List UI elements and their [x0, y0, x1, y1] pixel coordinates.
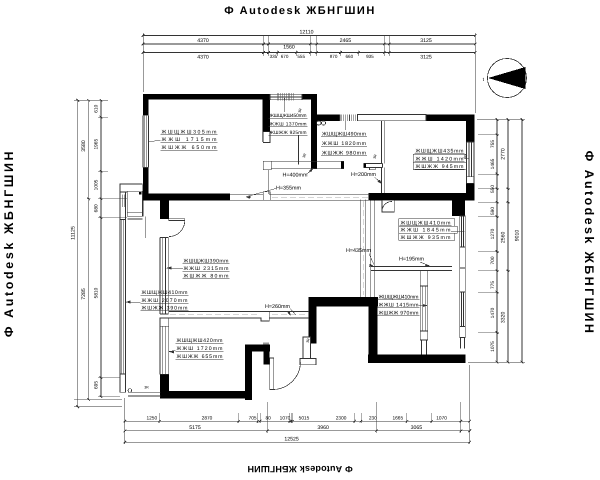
svg-text:4370: 4370	[197, 55, 209, 61]
svg-text:7285: 7285	[81, 288, 87, 300]
svg-text:1965: 1965	[93, 139, 99, 150]
svg-text:2300: 2300	[336, 415, 347, 421]
svg-text:755: 755	[490, 140, 496, 148]
svg-text:5015: 5015	[299, 415, 310, 421]
svg-text:670: 670	[281, 54, 289, 59]
svg-text:1005: 1005	[93, 179, 99, 190]
svg-text:H=435mm: H=435mm	[346, 248, 372, 254]
svg-text:555: 555	[297, 54, 305, 59]
svg-text:3125: 3125	[420, 38, 432, 44]
svg-text:1465: 1465	[490, 158, 496, 169]
svg-text:12525: 12525	[284, 436, 299, 442]
svg-text:Ф Autodesk ЖБНГШИН: Ф Autodesk ЖБНГШИН	[224, 5, 376, 17]
svg-text:3R: 3R	[144, 386, 149, 390]
svg-text:2560: 2560	[501, 232, 507, 244]
svg-text:2770: 2770	[501, 148, 507, 160]
svg-text:2870: 2870	[202, 415, 213, 421]
svg-text:Ф Autodesk ЖБНГШИН: Ф Autodesk ЖБНГШИН	[2, 149, 16, 337]
svg-text:705: 705	[249, 415, 257, 421]
svg-text:1075: 1075	[490, 341, 496, 352]
svg-text:1560: 1560	[283, 44, 295, 50]
svg-text:H=400mm: H=400mm	[282, 172, 308, 178]
svg-text:695: 695	[93, 381, 99, 389]
svg-text:H=200mm: H=200mm	[351, 172, 377, 178]
svg-text:Ф Autodesk ЖБНГШИН: Ф Autodesk ЖБНГШИН	[247, 464, 353, 474]
svg-text:775: 775	[490, 281, 496, 289]
svg-text:1665: 1665	[392, 415, 403, 421]
svg-text:590: 590	[490, 207, 496, 215]
svg-text:3580: 3580	[81, 140, 87, 152]
svg-text:870: 870	[330, 54, 338, 59]
svg-text:700: 700	[490, 256, 496, 264]
svg-text:935: 935	[366, 54, 374, 59]
svg-text:H=355mm: H=355mm	[276, 185, 302, 191]
svg-text:9010: 9010	[515, 230, 521, 242]
svg-text:610: 610	[93, 104, 99, 112]
svg-text:1250: 1250	[146, 415, 157, 421]
svg-text:4370: 4370	[197, 38, 209, 44]
svg-text:5175: 5175	[189, 425, 201, 431]
svg-text:230: 230	[369, 415, 377, 421]
svg-text:2465: 2465	[340, 38, 352, 44]
svg-text:H=195mm: H=195mm	[399, 257, 425, 263]
svg-text:12110: 12110	[299, 30, 313, 36]
svg-text:3125: 3125	[420, 55, 432, 61]
svg-text:3960: 3960	[317, 425, 329, 431]
svg-text:3065: 3065	[411, 425, 423, 431]
svg-text:1270: 1270	[490, 228, 496, 239]
svg-text:1070: 1070	[280, 415, 291, 421]
svg-text:5810: 5810	[93, 287, 99, 298]
svg-text:11125: 11125	[71, 226, 77, 240]
svg-text:680: 680	[93, 204, 99, 212]
svg-text:1470: 1470	[490, 307, 496, 318]
svg-text:3320: 3320	[501, 312, 507, 324]
svg-text:1070: 1070	[436, 415, 447, 421]
svg-text:660: 660	[345, 54, 353, 59]
svg-text:H=260mm: H=260mm	[265, 304, 291, 310]
svg-text:80: 80	[266, 415, 272, 421]
svg-text:335: 335	[270, 54, 278, 59]
svg-text:Ф Autodesk ЖБНГШИН: Ф Autodesk ЖБНГШИН	[582, 151, 596, 336]
